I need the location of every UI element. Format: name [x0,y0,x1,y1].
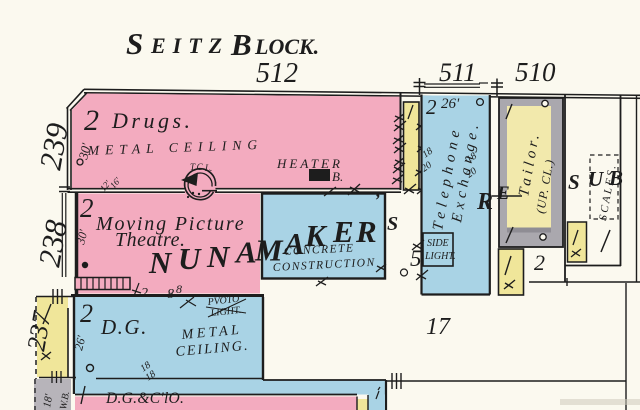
svg-text:B: B [608,166,623,190]
svg-text:U: U [178,241,202,276]
svg-text:B: B [230,27,252,62]
svg-text:N: N [206,239,231,274]
svg-text:2: 2 [534,250,545,275]
svg-text:SIDE: SIDE [427,238,449,249]
svg-text:2: 2 [426,95,437,119]
svg-text:S: S [568,170,580,194]
svg-text:B.: B. [332,169,343,184]
svg-text:S: S [126,26,143,61]
svg-text:511: 511 [439,58,476,87]
svg-text:2: 2 [80,299,93,328]
svg-text:’: ’ [374,190,380,210]
svg-text:17: 17 [426,314,451,340]
svg-text:R: R [355,214,377,249]
svg-text:LIGHT.: LIGHT. [424,251,456,262]
svg-text:S: S [387,213,398,235]
svg-text:LOCK.: LOCK. [254,34,319,59]
svg-text:D.G.&C'lO.: D.G.&C'lO. [105,390,184,407]
svg-text:2: 2 [80,193,94,223]
svg-text:18': 18' [41,393,55,409]
svg-text:5: 5 [410,246,422,271]
svg-text:Drugs.: Drugs. [111,108,194,133]
svg-text:A: A [234,235,257,270]
svg-text:U: U [588,167,605,191]
svg-text:2.: 2. [141,286,152,301]
svg-text:512: 512 [256,58,298,89]
svg-text:26': 26' [441,96,460,112]
svg-text:N: N [148,245,173,280]
svg-text:8: 8 [176,282,182,296]
svg-text:E: E [496,183,510,204]
svg-text:R: R [476,189,493,215]
svg-text:2: 2 [84,104,99,137]
svg-text:8: 8 [167,287,174,302]
svg-text:D.G.: D.G. [100,315,148,339]
svg-text:510: 510 [515,57,556,87]
svg-text:EITZ: EITZ [150,33,229,58]
